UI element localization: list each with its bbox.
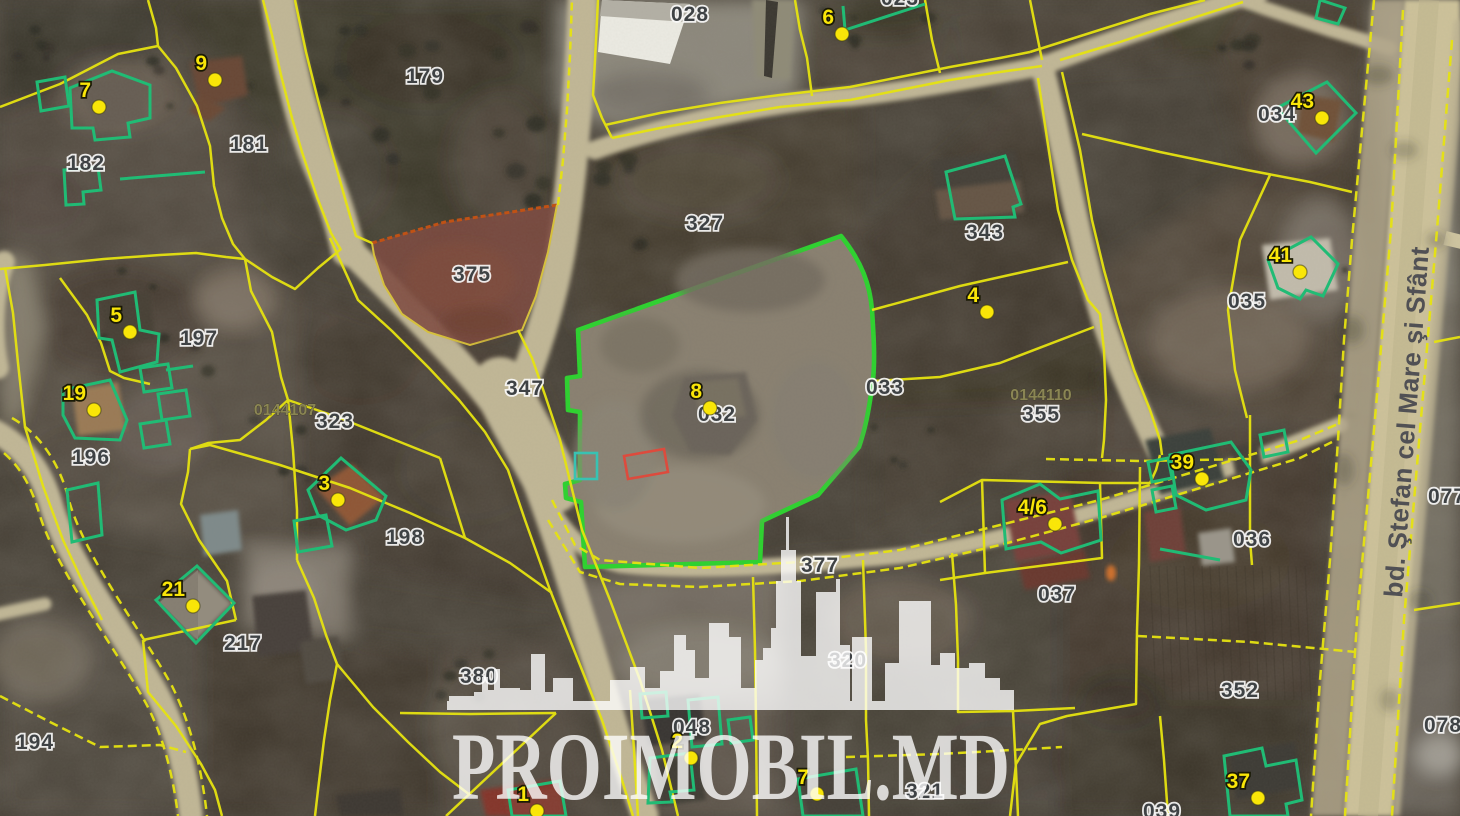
- svg-text:PROIMOBIL.MD: PROIMOBIL.MD: [452, 713, 1010, 816]
